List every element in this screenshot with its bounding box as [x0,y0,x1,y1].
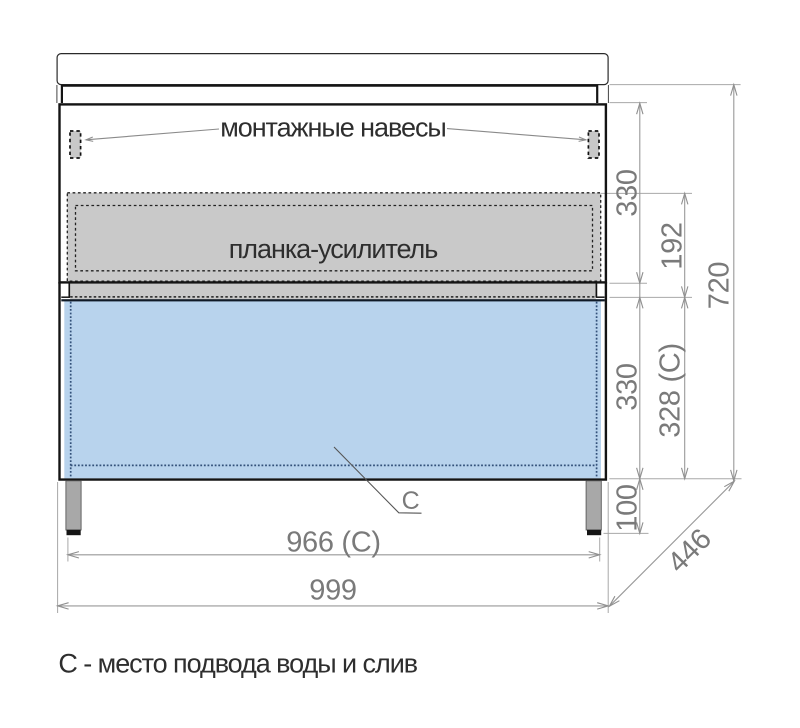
svg-text:966 (С): 966 (С) [286,527,381,559]
svg-text:192: 192 [657,222,689,270]
svg-text:С - место подвода воды и слив: С - место подвода воды и слив [58,649,417,679]
svg-text:монтажные навесы: монтажные навесы [220,113,446,143]
svg-text:446: 446 [662,523,718,579]
svg-text:330: 330 [611,363,643,411]
svg-text:330: 330 [611,169,643,217]
svg-text:100: 100 [612,484,644,532]
svg-text:планка-усилитель: планка-усилитель [229,234,438,264]
svg-text:C: C [402,487,420,515]
svg-text:720: 720 [704,262,736,310]
svg-text:999: 999 [309,575,357,607]
svg-text:328 (С): 328 (С) [655,343,687,438]
